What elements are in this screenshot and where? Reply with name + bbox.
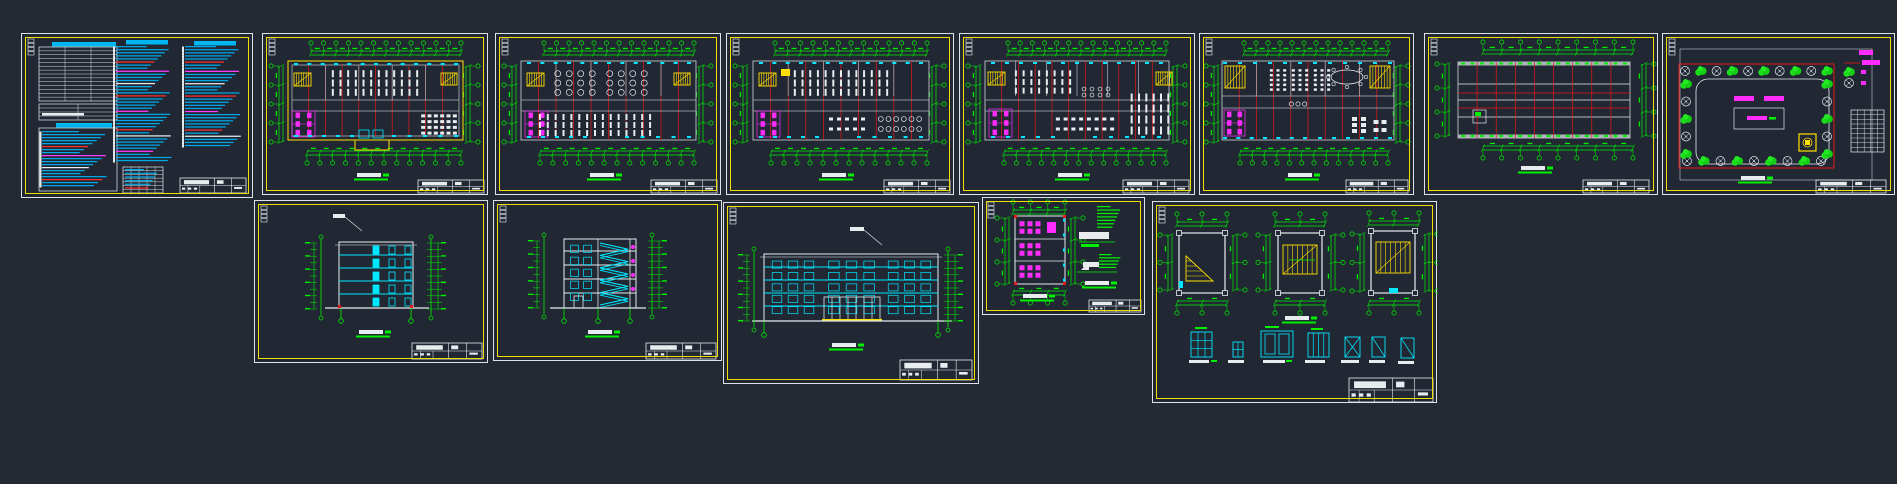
sheet-section-drawing [494,201,723,362]
sheet-floor-plan-4-drawing [960,34,1196,196]
sheet-floor-plan-3 [726,33,954,195]
sheet-stair-details-drawing [1153,202,1438,404]
sheet-floor-plan-5 [1199,33,1414,195]
sheet-general-notes [21,33,253,198]
sheet-roof-plan [1424,33,1658,195]
sheet-side-elevation-drawing [255,201,489,364]
sheet-front-elevation-drawing [724,203,980,385]
sheet-site-plan [1662,33,1895,195]
sheet-toilet-detail [982,197,1145,315]
sheet-floor-plan-2 [495,33,721,195]
sheet-roof-plan-drawing [1425,34,1659,196]
sheet-floor-plan-5-drawing [1200,34,1415,196]
sheet-front-elevation [723,202,979,384]
sheet-side-elevation [254,200,488,363]
sheet-section [493,200,722,361]
cad-canvas[interactable]: cad-drawing-workspace [0,0,1897,484]
sheet-floor-plan-1-drawing [263,34,489,196]
sheet-floor-plan-4 [959,33,1195,195]
sheet-toilet-detail-drawing [983,198,1146,316]
sheet-floor-plan-2-drawing [496,34,722,196]
sheet-general-notes-drawing [22,34,254,199]
sheet-site-plan-drawing [1663,34,1896,196]
sheet-floor-plan-3-drawing [727,34,955,196]
sheet-stair-details [1152,201,1437,403]
sheet-floor-plan-1 [262,33,488,195]
